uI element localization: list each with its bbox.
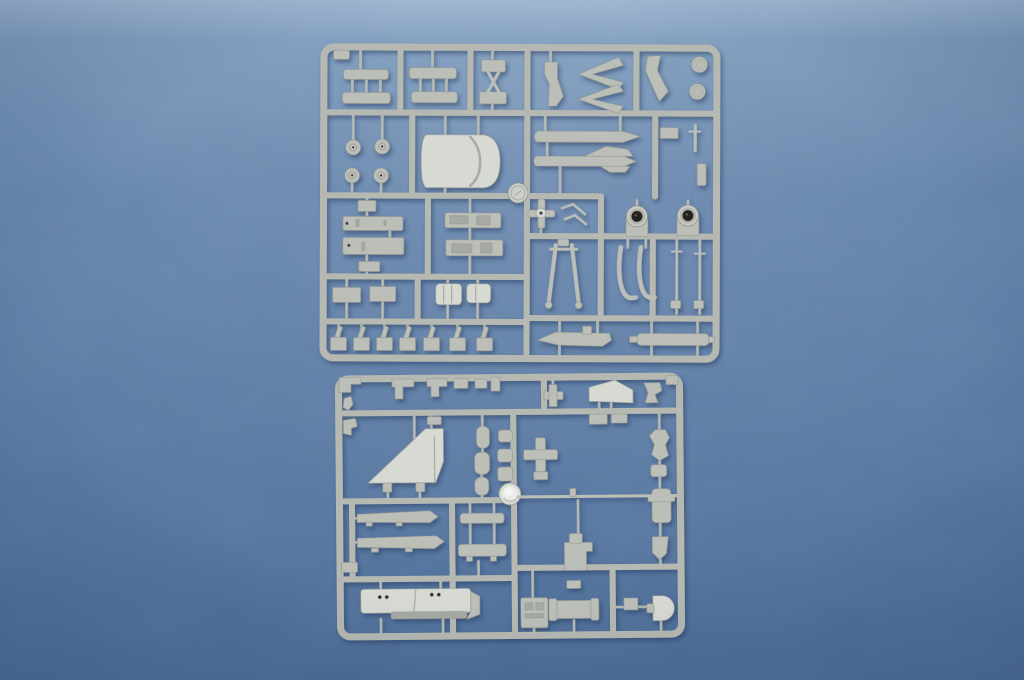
photo-model-kit-sprues xyxy=(0,0,1024,680)
scene-svg xyxy=(0,0,1024,680)
vignette xyxy=(0,0,1024,680)
